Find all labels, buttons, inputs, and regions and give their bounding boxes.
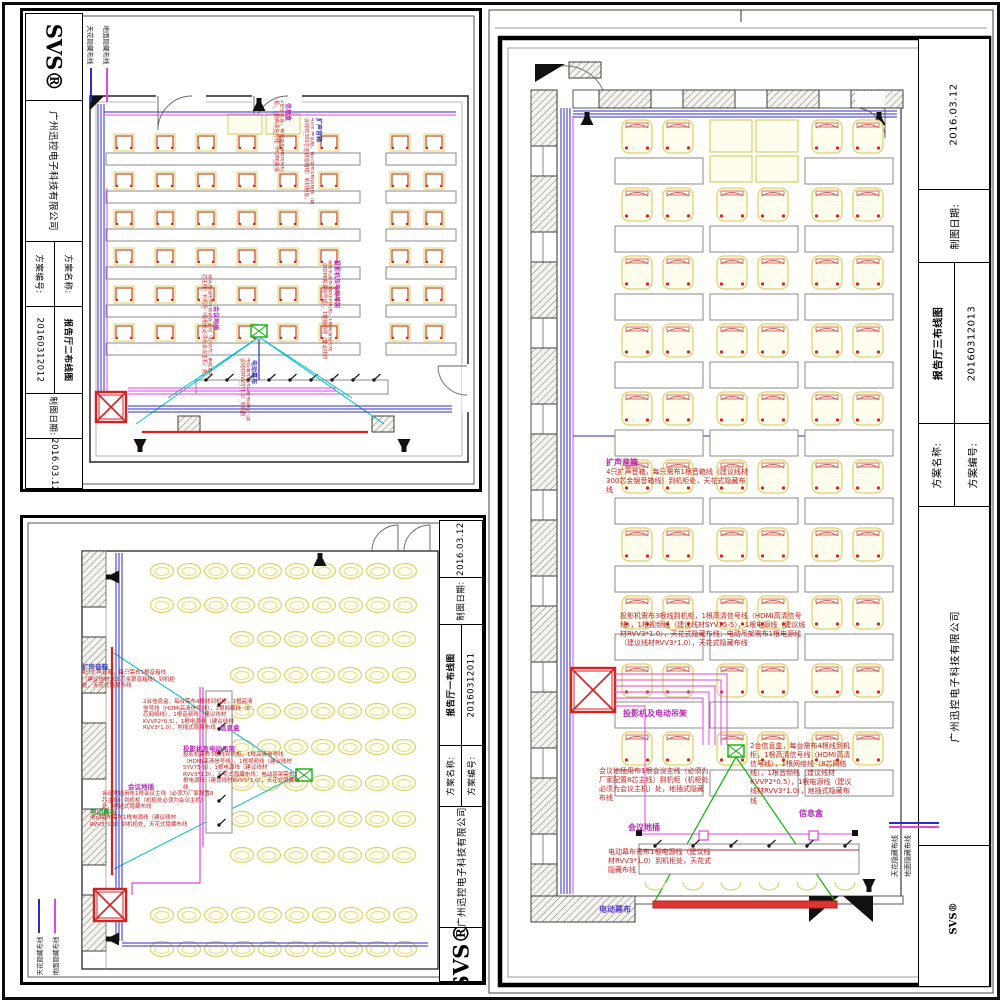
hall2-projector-note: 投影机需布3根线到机柜，1根高清信号线（HDMI高清信号线），1根视频线（建议线…: [321, 260, 332, 360]
hall1-conference-note: 会议地插用布1根会议主线（必须为厂家配置8芯主线）到机柜（机柜处必须为会议主机）…: [102, 791, 216, 811]
titleblock-labels-cell: 方案名称: 方案编号:: [919, 424, 989, 507]
hall3-screen-note: 电动幕布需布1根电源线（建议线材RVV3*1.0）到机柜处，天花式隐藏布线: [608, 848, 712, 875]
legend-floor-line: [106, 68, 108, 102]
date-value: 2016.03.12: [456, 522, 466, 576]
hall1-conference-label: 会议地插: [128, 781, 154, 791]
titleblock-logo-cell: SVS®: [440, 928, 482, 984]
titleblock-title-cell: 20160312012 报告厅二布线图: [26, 307, 82, 394]
date-label: 制图日期:: [48, 396, 60, 435]
titleblock-date-cell: 2016.03.12: [440, 521, 482, 578]
name-label: 方案名称:: [62, 254, 74, 293]
sheet-hall1: 2016.03.12 制图日期: 报告厅一布线图 20160312011 方案名…: [20, 515, 486, 985]
legend-ceiling-line: [38, 899, 40, 933]
hall2-conference-label: 会议地插: [213, 306, 221, 336]
legend-floor-label: 地面隐藏布线: [50, 937, 60, 976]
hall3-projector-note: 投影机需布3根线到机柜，1根高清信号线（HDMI高清信号线），1根视频线（建议线…: [620, 612, 806, 648]
name-label: 方案名称:: [444, 756, 456, 795]
hall2-speaker-label: 扩声音箱: [316, 118, 324, 152]
company-name: 广州迅控电子科技有限公司: [47, 111, 61, 231]
hall3-infobox-note: 2台信息盒，每台需布4根线到机柜，1根高清信号线（HDMI高清信号线），1根网络…: [750, 742, 856, 806]
hall3-conference-label: 会议地插: [628, 822, 660, 833]
titleblock-datelabel-cell: 制图日期:: [26, 394, 82, 439]
number-label: 方案编号:: [964, 442, 979, 488]
legend-ceiling-line: [889, 822, 939, 824]
titleblock-hall2: SVS® 广州迅控电子科技有限公司 方案编号: 方案名称: 2016031201…: [25, 13, 83, 489]
titleblock-title-cell: 报告厅一布线图 20160312011: [440, 625, 482, 746]
date-label: 制图日期:: [947, 203, 962, 249]
titleblock-logo-cell: SVS®: [26, 14, 82, 101]
legend-floor-label: 地面隐藏布线: [903, 835, 913, 877]
sheet-title: 报告厅二布线图: [62, 318, 74, 381]
titleblock-title-cell: 报告厅三布线图 20160312013: [919, 263, 989, 424]
svs-logo: SVS®: [449, 928, 474, 984]
hall3-screen-label: 电动幕布: [599, 904, 631, 915]
hall2-speaker-note: 4只扩声音箱，每只需布1根音箱线（建议线材300芯金银音箱线）到机柜处，天花式隐…: [303, 118, 314, 206]
date-value: 2016.03.12: [49, 439, 59, 491]
number-label: 方案编号:: [466, 756, 478, 795]
titleblock-datelabel-cell: 制图日期:: [440, 578, 482, 625]
titleblock-company-cell: 广州迅控电子科技有限公司: [440, 807, 482, 928]
sheet-number: 20160312012: [35, 318, 45, 383]
date-label: 制图日期:: [455, 581, 467, 620]
svs-logo: SVS®: [948, 902, 959, 934]
sheet-number: 20160312011: [467, 653, 477, 718]
titleblock-date-cell: 2016.03.12: [26, 439, 82, 491]
name-label: 方案名称:: [929, 442, 944, 488]
titleblock-company-cell: 广州迅控电子科技有限公司: [919, 507, 989, 846]
hall3-projector-label: 投影机及电动吊架: [623, 708, 687, 719]
legend-floor-line: [889, 826, 939, 828]
titleblock-labels-cell: 方案编号: 方案名称:: [26, 242, 82, 307]
sheet-hall2: SVS® 广州迅控电子科技有限公司 方案编号: 方案名称: 2016031201…: [20, 8, 482, 492]
hall3-speaker-note: 4只扩声音箱，每只需布1根音箱线（建议线材300芯金银音箱线）到机柜处，天花式隐…: [606, 468, 752, 495]
legend-ceiling-label: 天花隐藏布线: [890, 835, 900, 877]
titleblock-company-cell: 广州迅控电子科技有限公司: [26, 101, 82, 242]
hall1-screen-note: 电动幕布需布1根电源线（建议线材RVV3*1.0）到机柜处，天花式隐藏布线: [90, 815, 192, 828]
titleblock-date-cell: 2016.03.12: [919, 39, 989, 190]
hall1-speaker-note: 4只扩声音箱，每只需布1根音箱线（建议线材300芯金银音箱线）到机柜处，天花式隐…: [82, 670, 176, 690]
hall2-infobox-label: 信息盒: [285, 103, 293, 127]
titleblock-labels-cell: 方案名称: 方案编号:: [440, 746, 482, 807]
legend-floor-line: [54, 899, 56, 933]
legend-hall2: 天花隐藏布线 地面隐藏布线: [84, 22, 113, 102]
hall1-projector-note: 投影机需布3根线到机柜，1根高清信号线（HDMI高清信号线），1根视频线（建议线…: [183, 752, 301, 792]
hall3-infobox-label: 信息盒: [799, 808, 823, 819]
legend-ceiling-label: 天花隐藏布线: [86, 26, 96, 65]
date-value: 2016.03.12: [948, 83, 959, 145]
hall2-screen-note: 电动幕布需布1根电源线（建议线材RVV3*1.0）到机柜处，天花式隐藏布线: [239, 358, 250, 426]
sheet-number: 20160312013: [966, 305, 977, 381]
svs-logo: SVS®: [42, 23, 67, 91]
titleblock-datelabel-cell: 制图日期:: [919, 190, 989, 263]
company-name: 广州迅控电子科技有限公司: [454, 807, 468, 927]
hall2-projector-label: 投影机及电动吊架: [334, 260, 342, 320]
legend-floor-label: 地面隐藏布线: [102, 26, 112, 65]
hall2-screen-label: 电动幕布: [251, 360, 259, 390]
hall1-infobox-label: 信息盒: [220, 722, 240, 732]
hall3-speaker-label: 扩声音箱: [606, 457, 638, 468]
legend-ceiling-line: [90, 68, 92, 102]
sheet-title: 报告厅一布线图: [444, 653, 456, 716]
sheet-hall3: 2016.03.12 制图日期: 报告厅三布线图 20160312013 方案名…: [487, 8, 995, 995]
hall2-conference-note: 会议地插用布1根会议主线（必须为厂家配置8芯主线）到机柜（机柜处必须为会议主机）…: [201, 274, 212, 380]
legend-hall3: 天花隐藏布线 地面隐藏布线: [889, 820, 943, 882]
drawing-page: SVS® 广州迅控电子科技有限公司 方案编号: 方案名称: 2016031201…: [0, 0, 1002, 1002]
hall1-plan-svg: [20, 515, 486, 985]
legend-ceiling-label: 天花隐藏布线: [34, 937, 44, 976]
hall2-infobox-note: 2台信息盒，每台需布4根线到机柜，1根高清信号线（HDMI高清信号线），1根网络…: [273, 100, 284, 172]
number-label: 方案编号:: [34, 254, 46, 293]
hall3-conference-note: 会议地插用布1根会议主线（必须为厂家配置8芯主线）到机柜（机柜处必须为会议主机）…: [599, 767, 709, 803]
titleblock-hall1: 2016.03.12 制图日期: 报告厅一布线图 20160312011 方案名…: [439, 520, 483, 982]
legend-hall1: 天花隐藏布线 地面隐藏布线: [32, 899, 61, 979]
sheet-title: 报告厅三布线图: [929, 306, 944, 380]
company-name: 广州迅控电子科技有限公司: [947, 610, 962, 742]
